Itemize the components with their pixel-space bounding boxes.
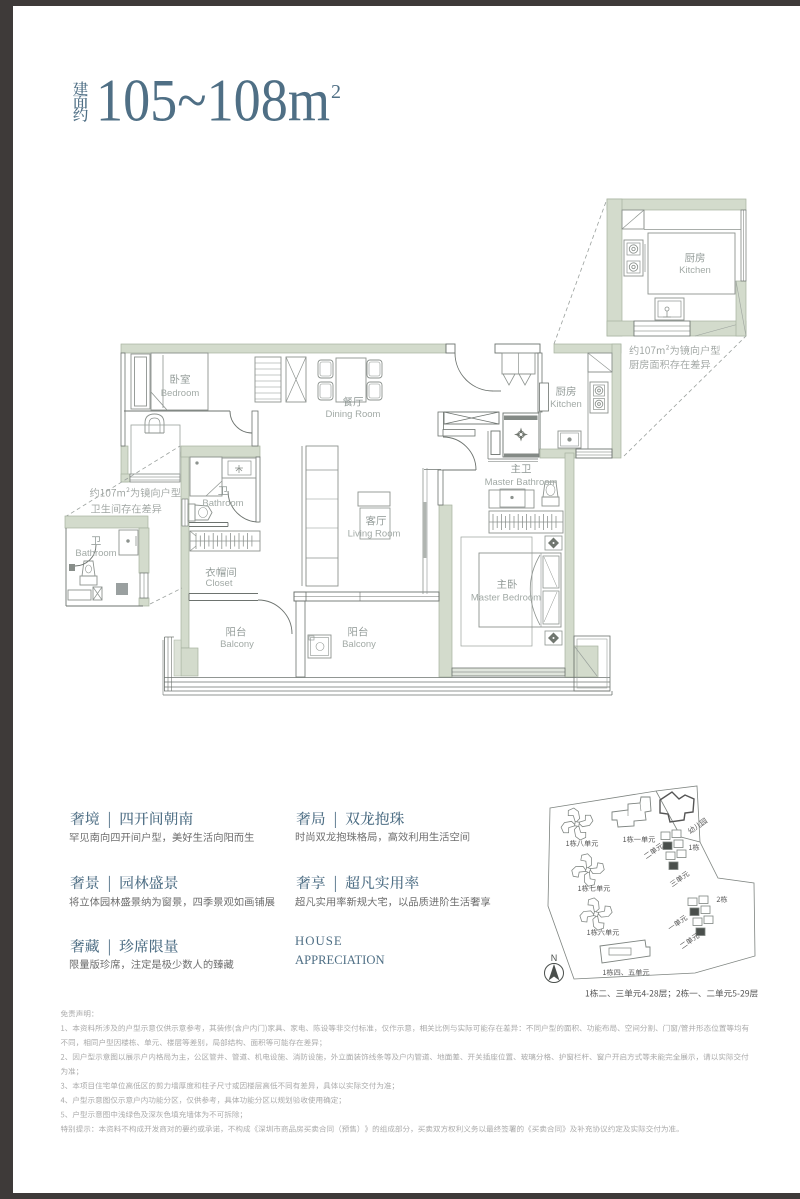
svg-text:APPRECIATION: APPRECIATION [295,953,385,967]
svg-text:Closet: Closet [206,578,233,589]
svg-text:Bathroom: Bathroom [75,548,116,559]
svg-text:105~108m: 105~108m [96,68,330,134]
svg-text:Kitchen: Kitchen [550,399,582,410]
svg-text:Bathroom: Bathroom [202,498,243,509]
svg-text:Master Bathroom: Master Bathroom [485,477,558,488]
svg-text:2: 2 [331,81,341,103]
svg-text:HOUSE: HOUSE [295,934,343,948]
svg-text:Kitchen: Kitchen [679,265,711,276]
svg-text:Living Room: Living Room [348,529,401,540]
svg-text:Balcony: Balcony [342,639,376,650]
svg-text:Master Bedroom: Master Bedroom [471,593,541,604]
svg-text:Balcony: Balcony [220,639,254,650]
svg-text:Bedroom: Bedroom [161,388,200,399]
svg-text:Dining Room: Dining Room [326,409,381,420]
svg-text:N: N [551,953,558,963]
